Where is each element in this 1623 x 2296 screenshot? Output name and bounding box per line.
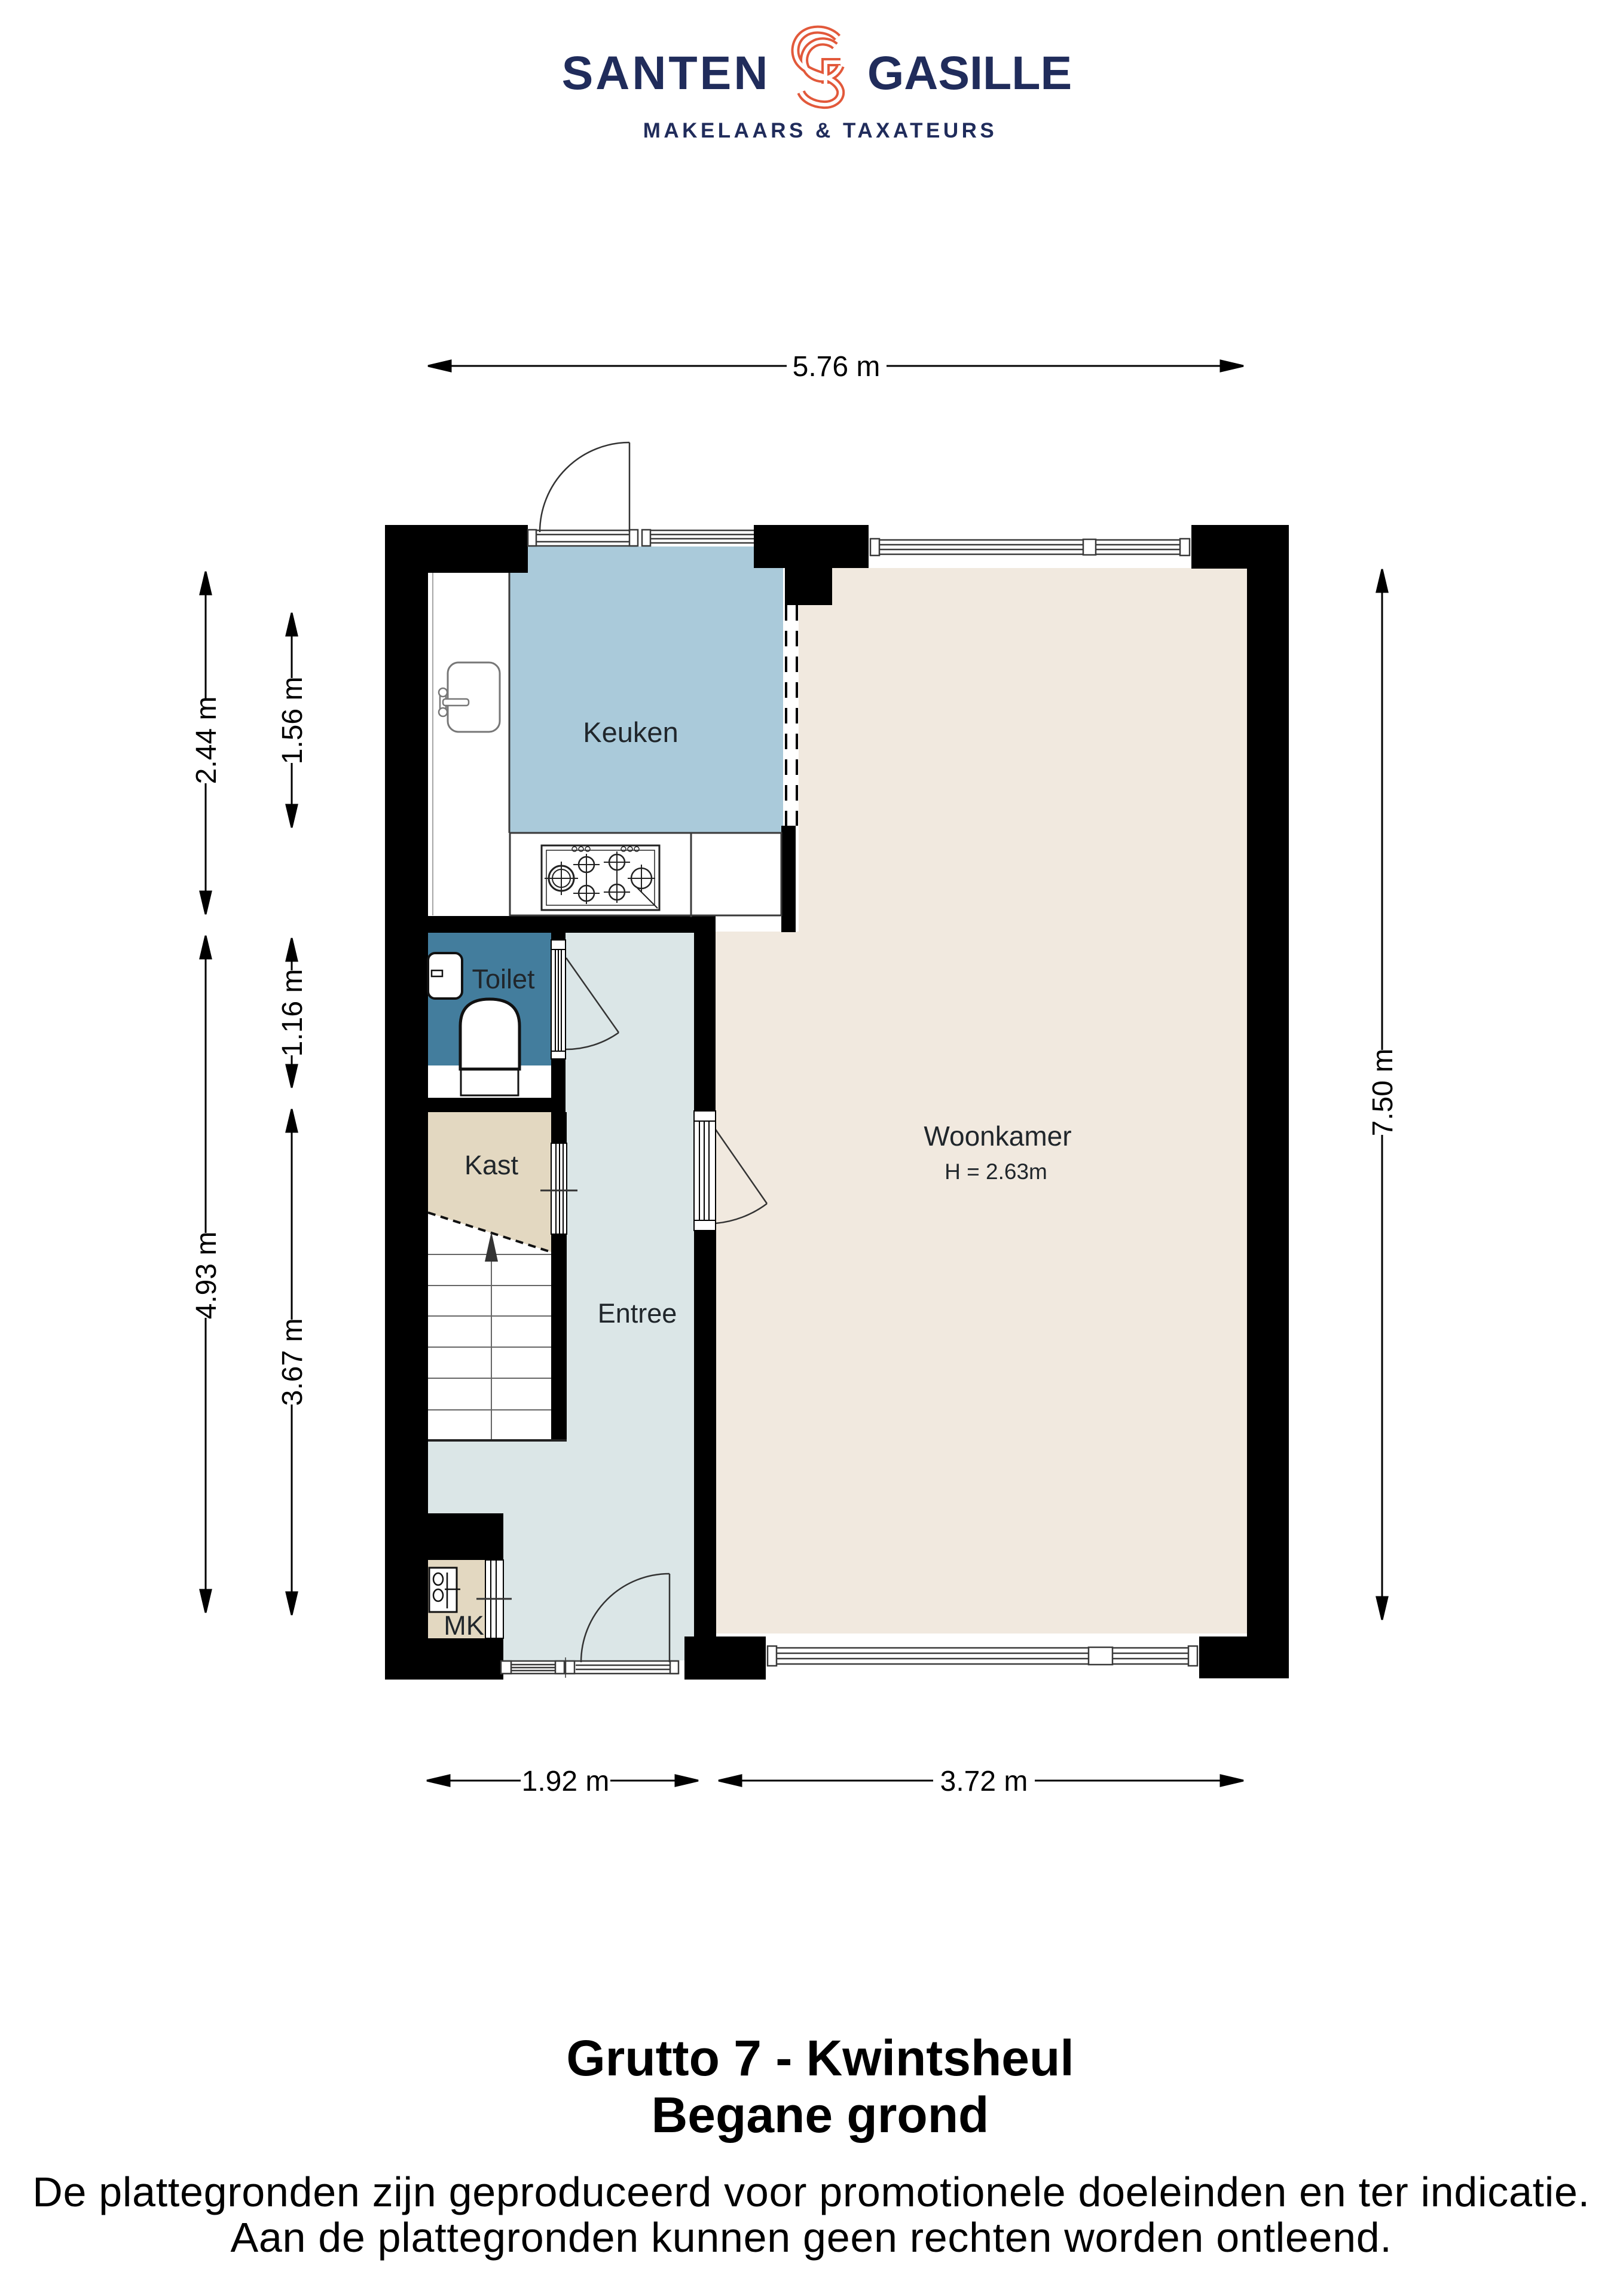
svg-text:1.92 m: 1.92 m [522, 1766, 610, 1797]
svg-text:Grutto 7 - Kwintsheul: Grutto 7 - Kwintsheul [566, 2030, 1074, 2086]
svg-text:7.50 m: 7.50 m [1367, 1049, 1399, 1137]
svg-text:MK: MK [444, 1610, 484, 1641]
svg-text:Keuken: Keuken [583, 716, 678, 748]
svg-text:1.56 m: 1.56 m [277, 677, 308, 765]
svg-text:3.67 m: 3.67 m [277, 1318, 308, 1406]
svg-text:3.72 m: 3.72 m [940, 1766, 1028, 1797]
svg-text:Kast: Kast [464, 1150, 519, 1180]
svg-text:2.44 m: 2.44 m [191, 697, 222, 784]
svg-text:1.16 m: 1.16 m [277, 969, 308, 1057]
svg-text:SANTEN: SANTEN [562, 46, 771, 99]
svg-text:Entree: Entree [598, 1298, 677, 1329]
svg-text:Aan de plattegronden kunnen ge: Aan de plattegronden kunnen geen rechten… [230, 2214, 1392, 2261]
svg-text:De plattegronden zijn geproduc: De plattegronden zijn geproduceerd voor … [32, 2169, 1590, 2215]
svg-text:4.93 m: 4.93 m [191, 1232, 222, 1320]
svg-text:H = 2.63m: H = 2.63m [945, 1159, 1047, 1184]
svg-text:GASILLE: GASILLE [867, 46, 1072, 99]
svg-text:MAKELAARS & TAXATEURS: MAKELAARS & TAXATEURS [643, 119, 998, 142]
svg-text:Begane grond: Begane grond [652, 2087, 989, 2143]
svg-text:5.76 m: 5.76 m [793, 351, 881, 383]
svg-text:Woonkamer: Woonkamer [924, 1120, 1071, 1152]
svg-text:Toilet: Toilet [472, 964, 535, 994]
